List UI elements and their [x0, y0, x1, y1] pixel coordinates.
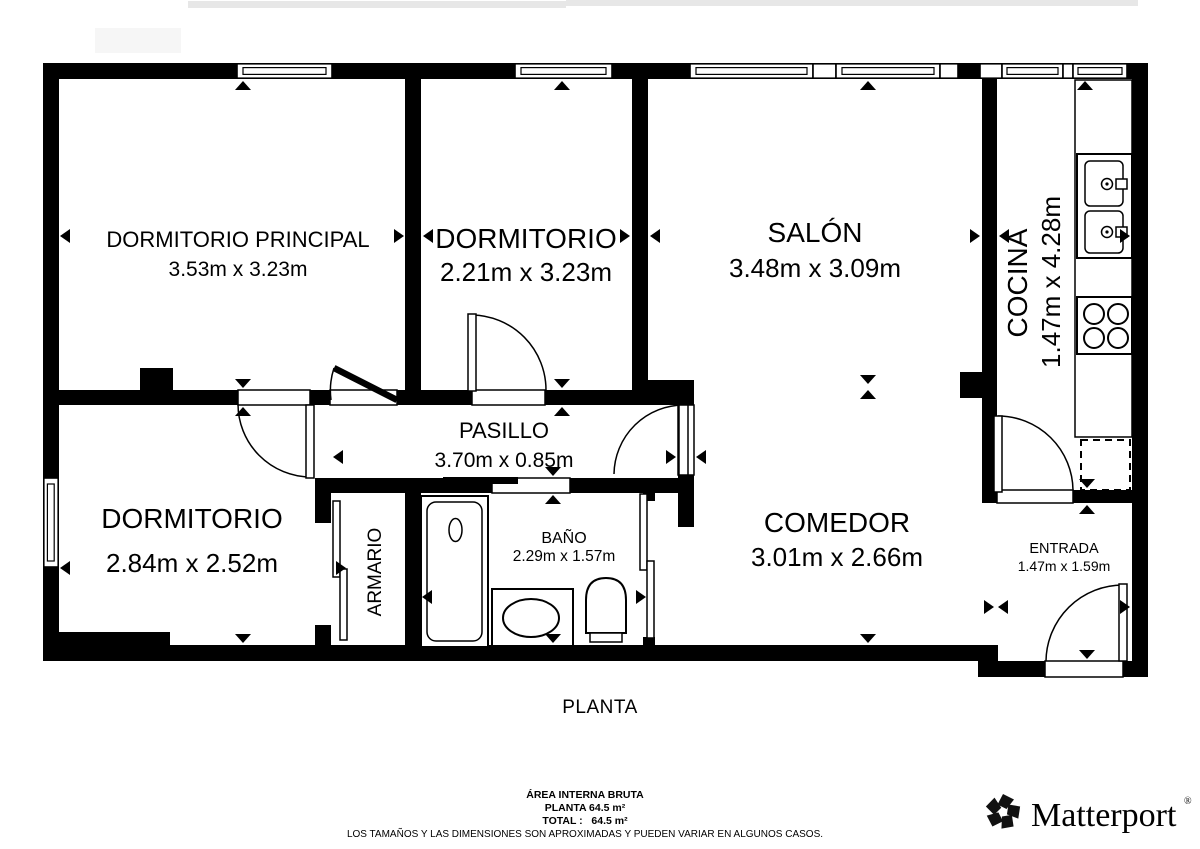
- room-label-entrada: ENTRADA: [1029, 541, 1099, 557]
- kitchen-fixtures: [1075, 80, 1132, 490]
- toilet: [586, 578, 626, 642]
- window-cocina-1: [1002, 64, 1063, 78]
- wall-armario-bano: [405, 493, 421, 661]
- wall-row-a: [43, 390, 238, 405]
- room-label-cocina: COCINA: [1002, 228, 1033, 337]
- wall-cocina-bottom-right: [1073, 490, 1148, 503]
- window-dorm2: [515, 64, 612, 78]
- wall-left-upper: [43, 63, 59, 478]
- window-cocina-2: [1073, 64, 1127, 78]
- wall-salon-pasillo-block: [632, 380, 694, 405]
- floor-plan-page: DORMITORIO PRINCIPAL 3.53m x 3.23m DORMI…: [0, 0, 1200, 849]
- sliding-door-bano-bar: [443, 477, 518, 484]
- footer-disclaimer: LOS TAMAÑOS Y LAS DIMENSIONES SON APROXI…: [347, 827, 823, 840]
- door-leaf-dorm2: [468, 314, 476, 391]
- room-label-comedor: COMEDOR: [764, 507, 910, 538]
- window-mullion-1: [813, 64, 836, 78]
- footer-planta-area: PLANTA 64.5 m²: [545, 802, 626, 814]
- room-dims-comedor: 3.01m x 2.66m: [751, 542, 923, 572]
- room-dims-dormitorio-3: 2.84m x 2.52m: [106, 548, 278, 578]
- room-dims-entrada: 1.47m x 1.59m: [1018, 558, 1111, 574]
- room-dims-cocina: 1.47m x 4.28m: [1036, 196, 1066, 368]
- wall-dorm1-dorm2: [405, 79, 421, 405]
- room-label-dormitorio-2: DORMITORIO: [435, 223, 616, 254]
- wall-pillar: [960, 372, 982, 398]
- wall-armario-top-stub: [315, 493, 331, 523]
- bathroom-sink: [492, 589, 573, 646]
- threshold-cocina-door: [997, 490, 1073, 503]
- wall-row-d: [545, 390, 632, 405]
- window-mullion-2: [940, 64, 958, 78]
- wall-bottom-step: [43, 632, 170, 645]
- window-salon-2: [836, 64, 940, 78]
- door-leaf-pasillo: [679, 405, 688, 475]
- door-leaf-front: [1119, 584, 1127, 661]
- background: [0, 0, 1200, 849]
- footer-area-heading: ÁREA INTERNA BRUTA: [526, 788, 644, 801]
- window-salon-1: [690, 64, 813, 78]
- room-label-pasillo: PASILLO: [459, 418, 549, 443]
- room-label-bano: BAÑO: [541, 527, 586, 547]
- wall-bano-comedor-bottom-stub: [643, 637, 655, 661]
- footer-total-area: TOTAL : 64.5 m²: [542, 815, 628, 827]
- wall-chimney-block: [140, 368, 173, 390]
- room-dims-pasillo: 3.70m x 0.85m: [435, 449, 574, 472]
- room-label-salon: SALÓN: [768, 217, 863, 248]
- registered-mark: ®: [1184, 796, 1192, 807]
- wall-armario-bottom-stub: [315, 625, 331, 661]
- room-label-dormitorio-principal: DORMITORIO PRINCIPAL: [106, 227, 369, 252]
- room-label-dormitorio-3: DORMITORIO: [101, 503, 282, 534]
- plan-title: PLANTA: [562, 697, 638, 718]
- door-leaf-dorm3: [306, 405, 314, 478]
- wall-right: [1132, 63, 1148, 677]
- wall-bottom-main: [43, 645, 978, 661]
- floor-plan-canvas: DORMITORIO PRINCIPAL 3.53m x 3.23m DORMI…: [0, 0, 1200, 849]
- room-dims-dormitorio-2: 2.21m x 3.23m: [440, 257, 612, 287]
- wall-entrada-bottom-left: [998, 661, 1045, 677]
- room-label-armario: ARMARIO: [365, 528, 386, 617]
- kitchen-stove: [1077, 297, 1132, 354]
- wall-row-c: [397, 390, 472, 405]
- threshold-dorm3-door: [238, 390, 310, 405]
- room-dims-bano: 2.29m x 1.57m: [513, 548, 616, 565]
- window-dorm-principal: [237, 64, 332, 78]
- wall-pasillo-bottom-right: [570, 478, 694, 493]
- wall-entrada-corner: [978, 645, 998, 677]
- wall-row-b: [310, 390, 330, 405]
- window-dorm3-left-wall: [44, 478, 58, 567]
- threshold-front-door: [1045, 661, 1123, 677]
- window-mullion-3: [980, 64, 1002, 78]
- threshold-dorm2-door: [472, 390, 545, 405]
- room-dims-salon: 3.48m x 3.09m: [729, 253, 901, 283]
- room-dims-dormitorio-principal: 3.53m x 3.23m: [169, 258, 308, 281]
- matterport-wordmark: Matterport: [1031, 797, 1177, 834]
- bathtub: [421, 496, 488, 647]
- wall-pasillo-comedor-stub: [678, 475, 694, 527]
- wall-entrada-bottom-right: [1123, 661, 1148, 677]
- window-mullion-4: [1063, 64, 1073, 78]
- kitchen-sink-unit: [1077, 154, 1132, 258]
- door-leaf-cocina: [994, 416, 1002, 492]
- wall-dorm2-salon: [632, 79, 648, 380]
